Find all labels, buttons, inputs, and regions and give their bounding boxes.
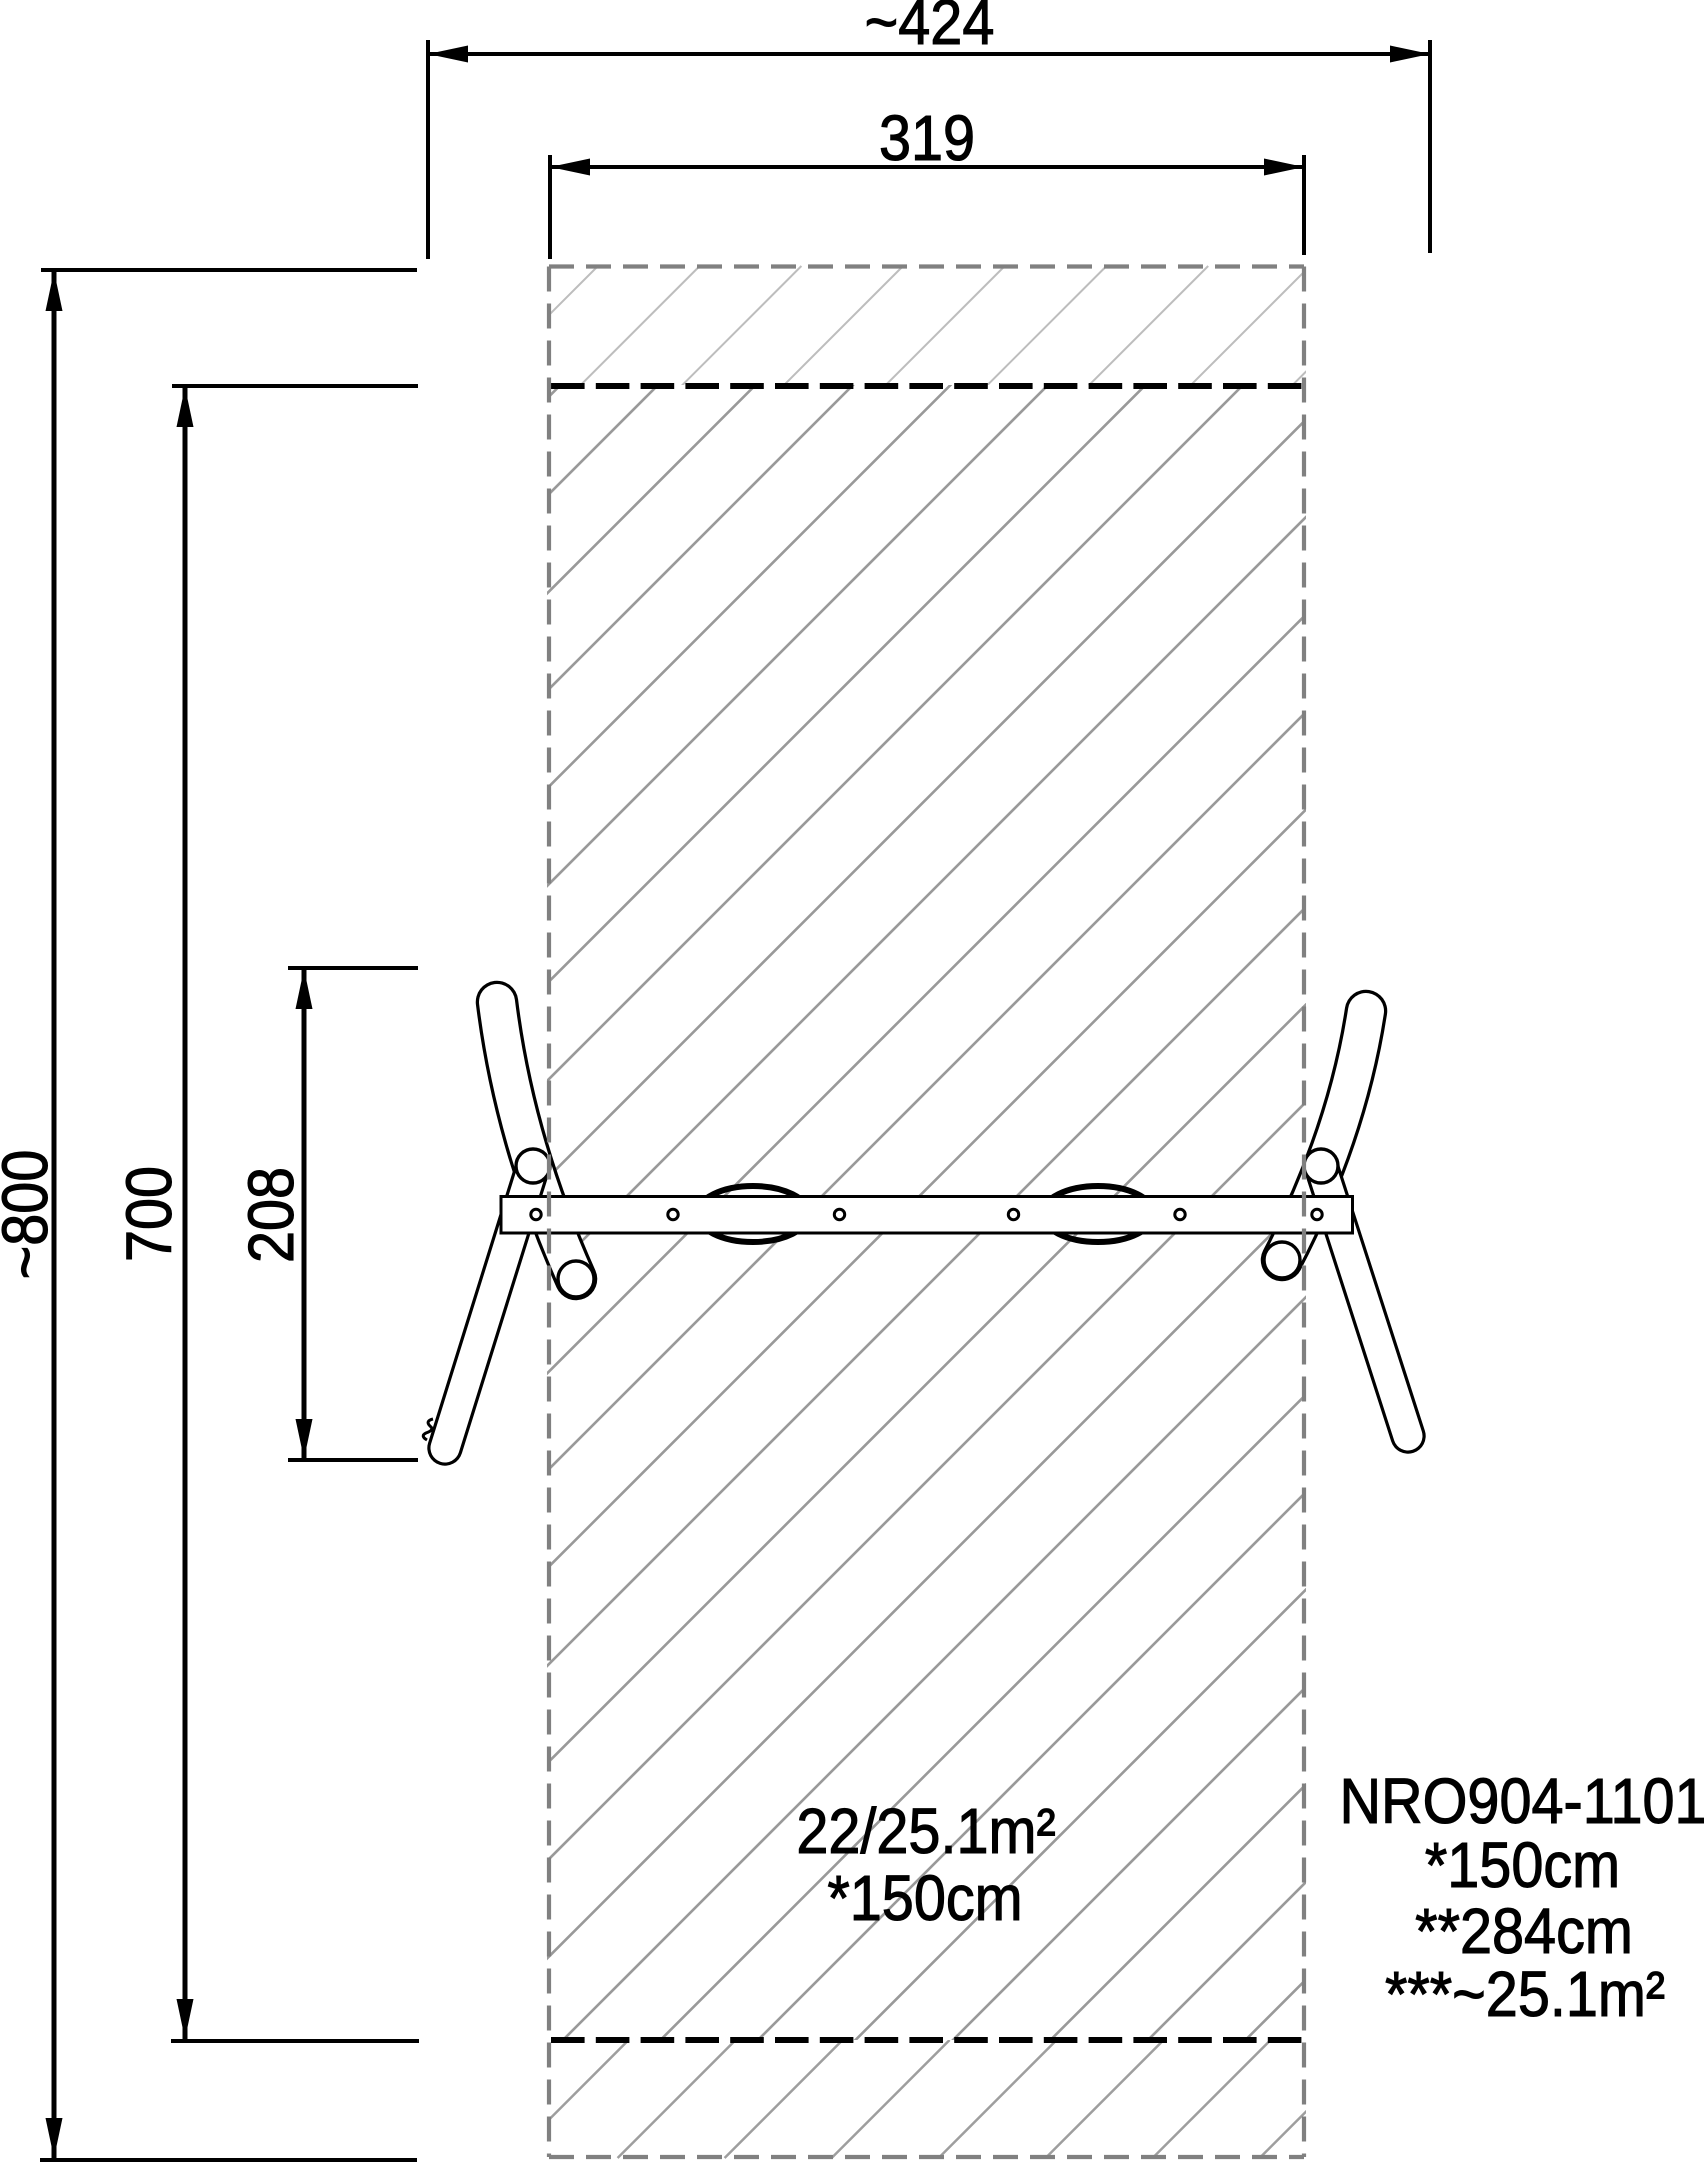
svg-text:22/25.1m²: 22/25.1m² bbox=[796, 1795, 1055, 1866]
svg-text:~424: ~424 bbox=[865, 0, 995, 58]
svg-text:319: 319 bbox=[879, 102, 975, 173]
svg-text:*150cm: *150cm bbox=[827, 1862, 1022, 1933]
svg-text:~800: ~800 bbox=[0, 1150, 61, 1280]
svg-text:***~25.1m²: ***~25.1m² bbox=[1385, 1958, 1665, 2029]
svg-text:208: 208 bbox=[235, 1167, 306, 1263]
svg-text:700: 700 bbox=[113, 1166, 184, 1262]
svg-text:*150cm: *150cm bbox=[1425, 1829, 1620, 1900]
svg-text:NRO904-1101: NRO904-1101 bbox=[1339, 1765, 1704, 1836]
svg-text:**284cm: **284cm bbox=[1415, 1895, 1633, 1966]
